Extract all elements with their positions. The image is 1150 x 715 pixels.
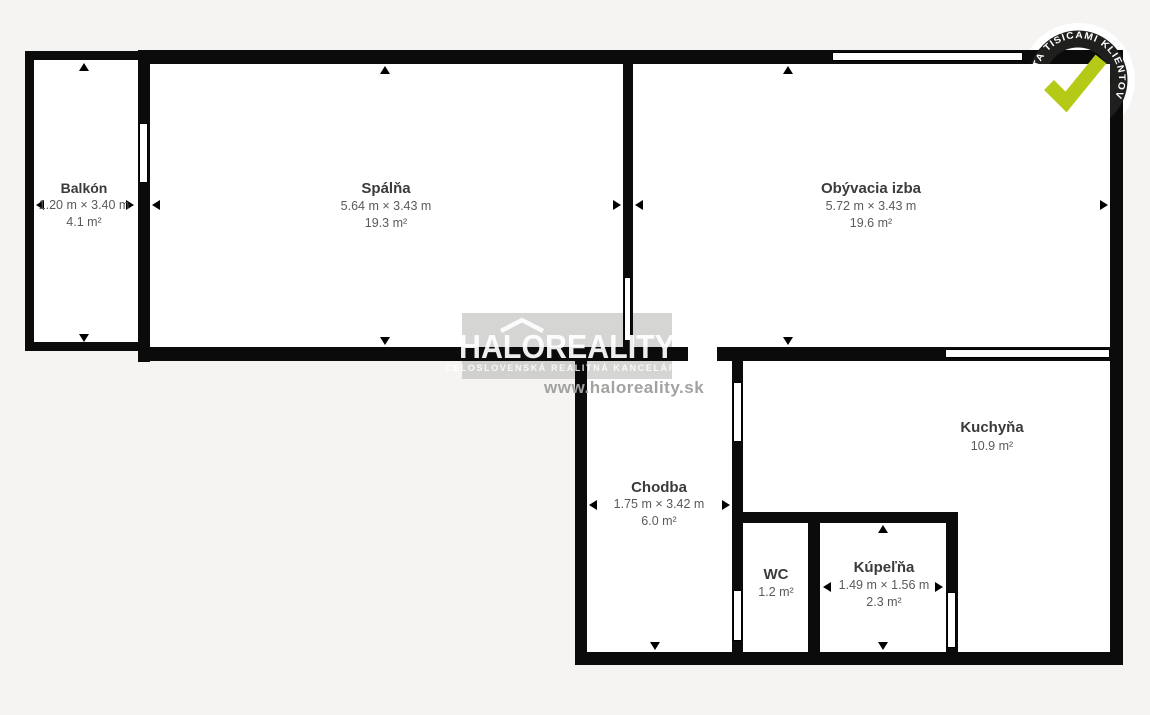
- label-balkon-name: Balkón: [61, 180, 108, 196]
- badge-ring: KVALITA TISÍCAMI KLIENTOV: [1029, 30, 1127, 121]
- label-spalna-area: 19.3 m²: [365, 216, 407, 230]
- watermark-website: www.haloreality.sk: [544, 378, 704, 398]
- arrow-kupelna-left: [823, 582, 831, 592]
- arrow-kupelna-right: [935, 582, 943, 592]
- arrow-kupelna-down: [878, 642, 888, 650]
- window-balkon: [139, 123, 148, 183]
- arrow-kupelna-up: [878, 525, 888, 533]
- arrow-obyvacia-down: [783, 337, 793, 345]
- label-chodba-dims: 1.75 m × 3.42 m: [614, 497, 705, 511]
- wall-wc-top: [732, 512, 958, 523]
- label-kupelna-area: 2.3 m²: [866, 595, 901, 609]
- label-kuchyna-area: 10.9 m²: [971, 439, 1013, 453]
- label-kupelna-dims: 1.49 m × 1.56 m: [839, 578, 930, 592]
- arrow-obyvacia-right: [1100, 200, 1108, 210]
- label-balkon-dims: 1.20 m × 3.40 m: [39, 198, 130, 212]
- wall-wc-kupelna: [808, 523, 820, 652]
- label-obyvacia-dims: 5.72 m × 3.43 m: [826, 199, 917, 213]
- label-balkon-area: 4.1 m²: [66, 215, 101, 229]
- arrow-obyvacia-up: [783, 66, 793, 74]
- arrow-spalna-right: [613, 200, 621, 210]
- wall-balkon-bottom: [25, 342, 138, 351]
- quality-badge: KVALITA TISÍCAMI KLIENTOV: [990, 0, 1150, 175]
- label-kupelna-name: Kúpeľňa: [854, 559, 915, 576]
- label-spalna-name: Spálňa: [361, 180, 410, 197]
- arrow-spalna-down: [380, 337, 390, 345]
- wall-balkon-left: [25, 51, 34, 351]
- arrow-chodba-right: [722, 500, 730, 510]
- label-obyvacia-area: 19.6 m²: [850, 216, 892, 230]
- door-kupelna-kuchyna: [947, 592, 956, 648]
- arrow-balkon-up: [79, 63, 89, 71]
- label-kuchyna-name: Kuchyňa: [960, 419, 1023, 436]
- label-wc-name: WC: [764, 566, 789, 583]
- arrow-chodba-down: [650, 642, 660, 650]
- label-spalna-dims: 5.64 m × 3.43 m: [341, 199, 432, 213]
- badge-checkmark-icon: [1049, 59, 1101, 102]
- label-chodba-name: Chodba: [631, 479, 687, 496]
- floorplan-page: { "floorplan": { "rooms": [ {"name": "Ba…: [0, 0, 1150, 715]
- arrow-obyvacia-left: [635, 200, 643, 210]
- wall-main-left: [138, 50, 150, 362]
- door-chodba-kuchyna: [733, 382, 742, 442]
- arrow-chodba-left: [589, 500, 597, 510]
- watermark-tagline: CELOSLOVENSKÁ REALITNÁ KANCELÁRIA: [445, 363, 689, 373]
- label-chodba-area: 6.0 m²: [641, 514, 676, 528]
- arrow-spalna-up: [380, 66, 390, 74]
- label-wc-area: 1.2 m²: [758, 585, 793, 599]
- wall-main-bottom: [575, 652, 1123, 665]
- label-obyvacia-name: Obývacia izba: [821, 180, 921, 197]
- watermark-logo: HALOREALITY: [459, 328, 675, 366]
- window-obyvacia-kuchyna: [945, 349, 1110, 358]
- arrow-balkon-down: [79, 334, 89, 342]
- arrow-spalna-left: [152, 200, 160, 210]
- door-chodba-obyvacia: [688, 347, 717, 361]
- room-kuchyna-fill: [743, 361, 1110, 652]
- wall-balkon-top: [25, 51, 138, 60]
- door-chodba-wc: [733, 590, 742, 641]
